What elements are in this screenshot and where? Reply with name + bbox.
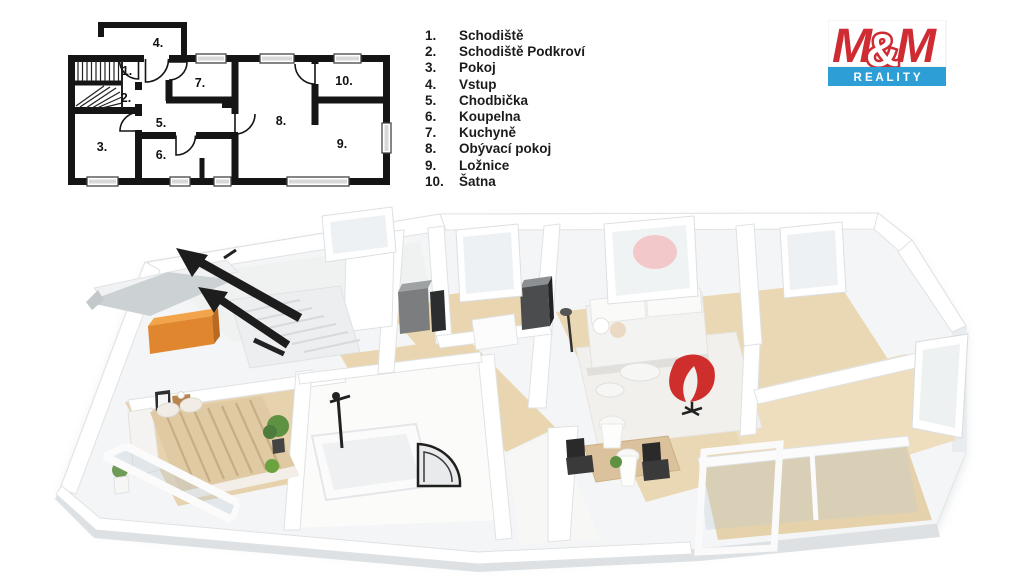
window-glass-e (919, 344, 960, 428)
shower-head (332, 392, 340, 400)
window-red-reflection (633, 235, 677, 269)
room-label-1: 1. (122, 64, 132, 78)
balcony-glass-1 (700, 456, 814, 530)
window-symbol (287, 177, 349, 186)
kitchen-unit1-side (430, 290, 446, 332)
plant-tall-pot (272, 438, 285, 454)
room-label-2: 2. (121, 91, 131, 105)
room-label-8: 8. (276, 114, 286, 128)
window-symbol (196, 54, 226, 63)
floorplan-2d: 1. 2. 3. 4. 5. 6. 7. 8. 9. 10. (68, 25, 391, 186)
hall-door-slab (344, 246, 394, 332)
legend-item: 5.Chodbička (425, 93, 655, 109)
balcony-glass-2 (814, 446, 918, 520)
legend-item-number: 9. (425, 158, 447, 174)
legend-item-label: Schodiště Podkroví (459, 44, 585, 60)
legend-item-label: Kuchyně (459, 125, 516, 141)
room-label-6: 6. (156, 148, 166, 162)
legend-item-number: 2. (425, 44, 447, 60)
window-glass-b (463, 232, 514, 294)
legend-item-number: 10. (425, 174, 447, 190)
window-symbol (334, 54, 361, 63)
legend-item: 3.Pokoj (425, 60, 655, 76)
legend-item: 8.Obývací pokoj (425, 141, 655, 157)
dining-chair-1-seat (566, 455, 594, 475)
plant-ball (265, 459, 279, 473)
legend-item: 6.Koupelna (425, 109, 655, 125)
legend-item-label: Chodbička (459, 93, 528, 109)
logo-reality-text: R E A L I T Y (853, 72, 920, 84)
legend-item-number: 8. (425, 141, 447, 157)
legend-item-label: Koupelna (459, 109, 521, 125)
dining-chair-2-seat (642, 459, 670, 481)
legend-item-label: Vstup (459, 77, 497, 93)
room-label-5: 5. (156, 116, 166, 130)
vestibule-walls (101, 25, 184, 56)
logo-m-right: M (896, 20, 937, 73)
room-label-7: 7. (195, 76, 205, 90)
legend-item-label: Schodiště (459, 28, 524, 44)
room-legend: 1.Schodiště 2.Schodiště Podkroví 3.Pokoj… (425, 28, 655, 190)
window-symbol (382, 123, 391, 153)
coffee-table-large (620, 363, 660, 381)
window-symbol (170, 177, 190, 186)
kitchen-island (472, 314, 518, 350)
room-label-10: 10. (335, 74, 352, 88)
window-glass-d (787, 230, 838, 290)
legend-item-number: 4. (425, 77, 447, 93)
legend-item-number: 7. (425, 125, 447, 141)
table-lamp-1-body (601, 424, 623, 448)
door-gap-vestibule (144, 53, 169, 64)
legend-item-label: Obývací pokoj (459, 141, 551, 157)
window-symbol (87, 177, 118, 186)
legend-item: 9.Ložnice (425, 158, 655, 174)
window-symbol (214, 177, 231, 186)
legend-item-label: Šatna (459, 174, 496, 190)
legend-item-number: 1. (425, 28, 447, 44)
window-symbol (260, 54, 294, 63)
legend-item-label: Pokoj (459, 60, 496, 76)
legend-item-number: 5. (425, 93, 447, 109)
room-label-9: 9. (337, 137, 347, 151)
mm-reality-logo: M M & R E A L I T Y (828, 20, 948, 88)
room-label-4: 4. (153, 36, 163, 50)
floorplan-3d-render (55, 207, 968, 572)
legend-item-number: 3. (425, 60, 447, 76)
plant-small-pot (114, 476, 129, 494)
kitchen-unit1-front (398, 288, 430, 334)
legend-item: 2.Schodiště Podkroví (425, 44, 655, 60)
sofa-pillow-beige (610, 322, 626, 338)
coffee-table-small (596, 383, 624, 397)
sofa-pillow-white (593, 318, 609, 334)
legend-item-number: 6. (425, 109, 447, 125)
legend-item: 4.Vstup (425, 77, 655, 93)
nightstand-lamp (178, 392, 185, 399)
plant-tall-leaves-2 (263, 425, 277, 439)
legend-item-label: Ložnice (459, 158, 509, 174)
floorplan-presentation: 1. 2. 3. 4. 5. 6. 7. 8. 9. 10. 1.Schodiš… (0, 0, 1024, 576)
floor-lamp-head (560, 308, 572, 316)
legend-item: 1.Schodiště (425, 28, 655, 44)
legend-item: 7.Kuchyně (425, 125, 655, 141)
dining-plant (610, 456, 622, 468)
room-label-3: 3. (97, 140, 107, 154)
legend-item: 10.Šatna (425, 174, 655, 190)
kitchen-unit2-front (520, 284, 550, 330)
